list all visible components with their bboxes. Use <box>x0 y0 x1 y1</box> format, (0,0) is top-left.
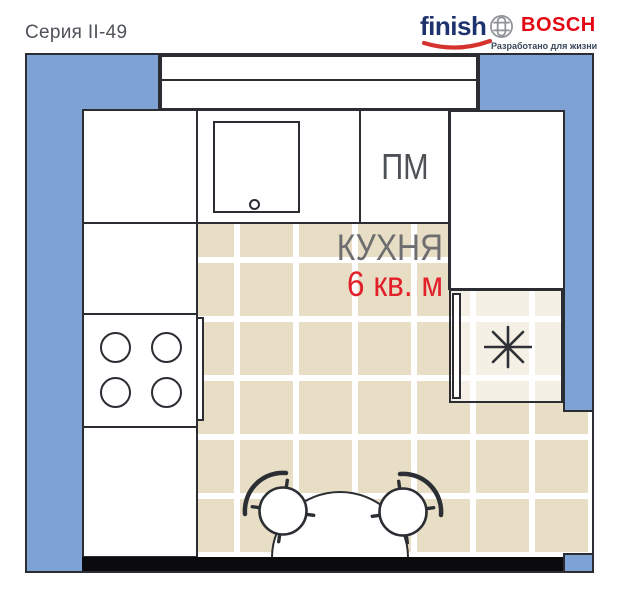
dishwasher-label: ПМ <box>381 146 428 188</box>
cabinet-left-middle <box>82 222 198 315</box>
bosch-tagline: Разработано для жизни <box>491 41 592 51</box>
wall-left <box>27 55 82 571</box>
burner-icon <box>151 377 182 408</box>
window-sill-band <box>160 79 478 110</box>
snowflake-icon <box>484 323 532 371</box>
wall-corner-top-right <box>478 55 592 110</box>
chairs <box>228 458 452 562</box>
bosch-logo: BOSCH <box>521 14 596 37</box>
chair-left <box>245 473 318 546</box>
chair-right <box>368 474 441 547</box>
stove-unit <box>82 313 198 428</box>
wall-corner-bottom-right <box>563 553 592 571</box>
burner-icon <box>100 332 131 363</box>
cabinet-left-bottom <box>82 426 198 558</box>
room-name-label: КУХНЯ <box>271 227 443 270</box>
room-area-label: 6 кв. м <box>263 266 443 305</box>
stove-handle <box>196 317 204 421</box>
finish-logo: finish <box>420 11 486 42</box>
burner-icon <box>100 377 131 408</box>
bosch-armature-icon <box>489 14 514 39</box>
cabinet-corner <box>82 109 198 224</box>
burner-icon <box>151 332 182 363</box>
finish-swoosh-icon <box>421 39 493 51</box>
window-outer-band <box>160 55 478 81</box>
wall-right <box>563 110 592 412</box>
cabinet-tall-right <box>448 110 563 290</box>
dishwasher-unit: ПМ <box>359 109 451 224</box>
fridge-door <box>452 293 461 399</box>
wall-corner-top-left <box>27 55 160 110</box>
series-title: Серия II-49 <box>25 22 127 44</box>
sink-drain-icon <box>249 199 260 210</box>
